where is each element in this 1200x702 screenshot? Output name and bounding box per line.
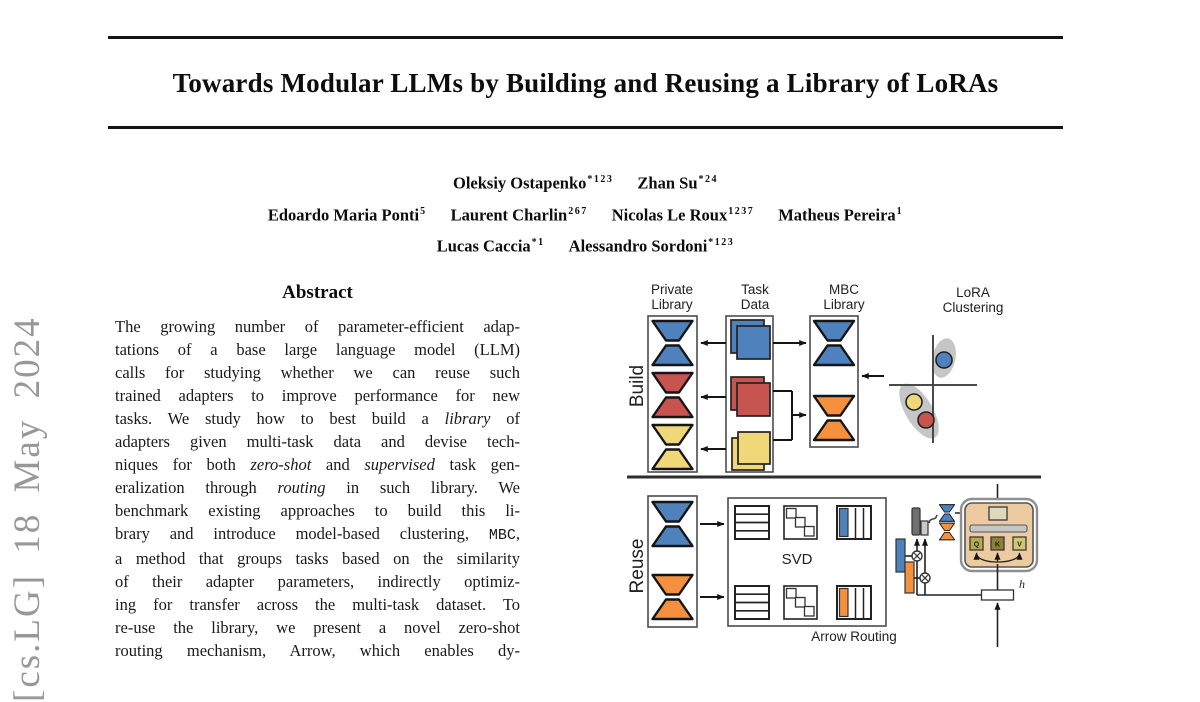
lora-clustering-label: Clustering (943, 300, 1004, 315)
abstract-line: tations of a base large language model (… (115, 338, 520, 361)
mini-lora-orange-icon (939, 523, 954, 540)
abstract-line: ing for transfer across the multi-task d… (115, 593, 520, 616)
author-affiliation-sup: *123 (587, 174, 613, 185)
prototype-bar-orange (905, 562, 914, 593)
hidden-state: h (982, 564, 1026, 647)
title-rule-bottom (108, 126, 1063, 129)
page-title: Towards Modular LLMs by Building and Reu… (108, 68, 1063, 99)
v-label: V (1017, 542, 1022, 549)
author-name: Matheus Pereira1 (778, 198, 903, 230)
author-row: Lucas Caccia*1Alessandro Sordoni*123 (88, 229, 1083, 261)
mbc-library-label: Library (823, 297, 865, 312)
author-name: Oleksiy Ostapenko*123 (453, 166, 613, 198)
abstract-line: trained adapters to improve performance … (115, 384, 520, 407)
selection-squiggle (929, 515, 937, 523)
router-score-bar-dark (912, 508, 920, 535)
cluster-point-yellow (906, 394, 922, 410)
abstract-line: The growing number of parameter-efficien… (115, 315, 520, 338)
author-name: Zhan Su*24 (637, 166, 718, 198)
author-affiliation-sup: *24 (699, 174, 719, 185)
author-row: Edoardo Maria Ponti5Laurent Charlin267Ni… (88, 198, 1083, 230)
title-rule-top (108, 36, 1063, 39)
author-name: Nicolas Le Roux1237 (612, 198, 755, 230)
hidden-state-h-box (982, 590, 1014, 600)
abstract-line: tasks. We study how to best build a libr… (115, 407, 520, 430)
q-label: Q (974, 542, 980, 549)
abstract-line: calls for studying whether we can reuse … (115, 361, 520, 384)
lora-clustering-label: LoRA (956, 285, 990, 300)
abstract-line: re-use the library, we present a novel z… (115, 616, 520, 639)
abstract-section: Abstract The growing number of parameter… (115, 282, 520, 662)
author-affiliation-sup: 1237 (728, 206, 754, 217)
private-library-label: Private (651, 282, 693, 297)
author-affiliation-sup: *1 (532, 237, 545, 248)
attention-bar (970, 525, 1027, 532)
transformer-block: Q K V (961, 484, 1037, 571)
task-data-stacks (731, 320, 770, 470)
author-affiliation-sup: 1 (897, 206, 904, 217)
reuse-section-label: Reuse (627, 539, 648, 594)
author-name: Alessandro Sordoni*123 (569, 229, 735, 261)
abstract-line: routing mechanism, Arrow, which enables … (115, 639, 520, 662)
router-score-bar-light (921, 521, 928, 535)
abstract-line: a method that groups tasks based on the … (115, 547, 520, 570)
abstract-line: adapters given multi-task data and devis… (115, 430, 520, 453)
author-name: Edoardo Maria Ponti5 (268, 198, 427, 230)
reuse-arrows (700, 524, 724, 597)
abstract-line: benchmark existing approaches to build t… (115, 499, 520, 522)
k-label: K (995, 542, 1000, 549)
build-section-label: Build (627, 365, 648, 407)
prototype-bar-blue (896, 539, 905, 572)
abstract-line: of their adapter parameters, indirectly … (115, 570, 520, 593)
author-affiliation-sup: 267 (568, 206, 588, 217)
abstract-line: eralization through routing in such libr… (115, 476, 520, 499)
lora-clustering-scatter (889, 335, 977, 445)
author-name: Laurent Charlin267 (451, 198, 588, 230)
private-library-label: Library (651, 297, 693, 312)
author-row: Oleksiy Ostapenko*123Zhan Su*24 (88, 166, 1083, 198)
output-proj-box (989, 507, 1007, 520)
cluster-point-red (918, 412, 934, 428)
paper-page: { "arxiv_watermark": { "text": "[cs.LG] … (0, 0, 1200, 648)
svd-label: SVD (782, 551, 813, 568)
author-block: Oleksiy Ostapenko*123Zhan Su*24 Edoardo … (88, 166, 1083, 261)
h-label: h (1019, 577, 1025, 591)
mbc-library-label: MBC (829, 282, 859, 297)
abstract-line: brary and introduce model-based clusteri… (115, 522, 520, 547)
author-affiliation-sup: *123 (708, 237, 734, 248)
author-affiliation-sup: 5 (420, 206, 427, 217)
abstract-line: niques for both zero-shot and supervised… (115, 453, 520, 476)
arxiv-watermark: [cs.LG] 18 May 2024 (6, 316, 49, 702)
author-name: Lucas Caccia*1 (437, 229, 545, 261)
task-data-label: Task (741, 282, 769, 297)
task-data-label: Data (741, 297, 770, 312)
figure-lora-library: Build Private Library Task Data MBC Libr… (625, 272, 1135, 648)
abstract-body: The growing number of parameter-efficien… (115, 315, 520, 662)
abstract-heading: Abstract (115, 282, 520, 304)
arrow-routing-label: Arrow Routing (811, 629, 897, 644)
mini-lora-blue-icon (939, 505, 954, 522)
cluster-point-blue (936, 352, 952, 368)
